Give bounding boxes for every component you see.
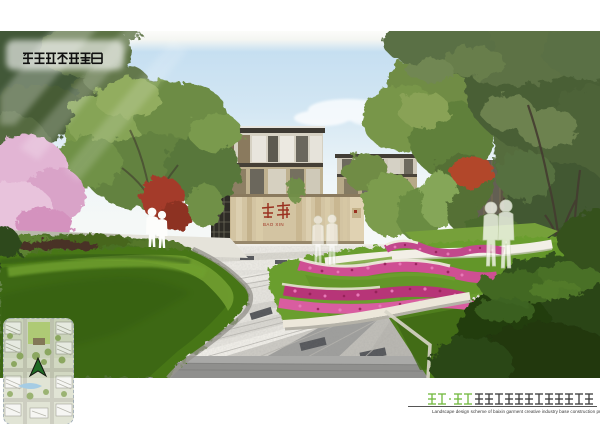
- svg-text:Landscape design scheme of bai: Landscape design scheme of baixin garmen…: [432, 409, 600, 414]
- svg-text:BAO XIN: BAO XIN: [263, 222, 284, 227]
